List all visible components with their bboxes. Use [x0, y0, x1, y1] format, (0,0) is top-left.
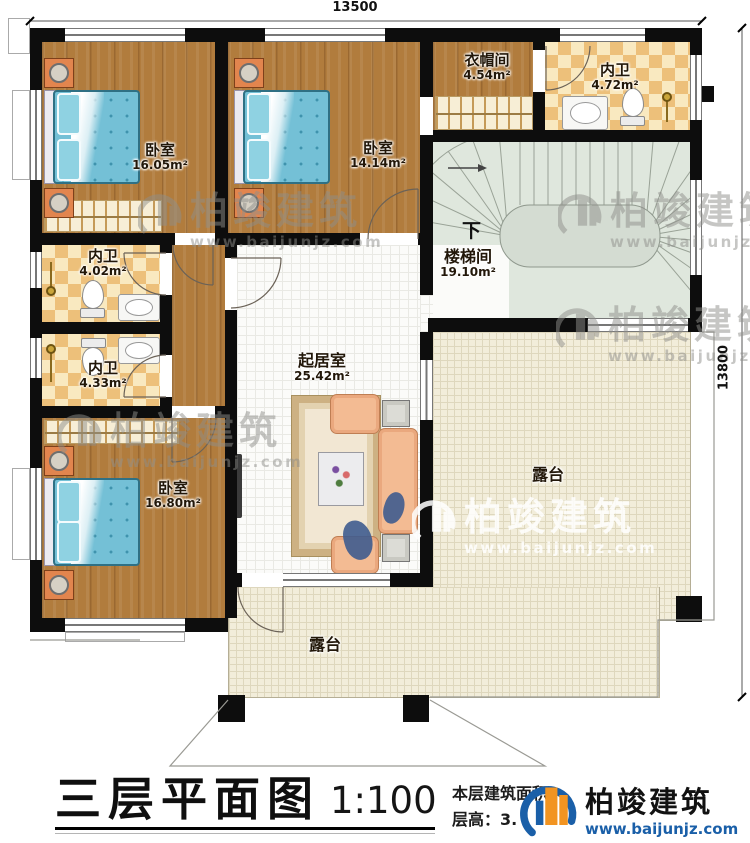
side-table — [382, 400, 410, 427]
bed-pillow — [57, 93, 81, 135]
page-title: 三层平面图 — [55, 776, 320, 822]
toilet-icon — [80, 280, 106, 320]
wall-segment — [420, 420, 433, 587]
drawing-scale: 1:100 — [330, 782, 437, 819]
toilet-icon — [620, 88, 646, 128]
wall-segment — [433, 130, 545, 142]
wall-segment — [160, 295, 172, 355]
stair-direction-label: 下 — [462, 216, 481, 243]
window — [283, 573, 390, 587]
nightstand — [44, 188, 74, 218]
window — [30, 468, 42, 560]
brand-logo-icon — [518, 780, 580, 840]
wall-segment — [690, 42, 702, 55]
bed-pillow — [57, 481, 81, 523]
wall-segment — [690, 120, 702, 180]
window-sill — [12, 468, 30, 560]
wall-segment — [160, 245, 172, 253]
floor-drain-icon — [662, 96, 672, 122]
window — [30, 338, 42, 378]
wall-segment — [42, 322, 160, 334]
dimension-right: 13800 — [717, 318, 732, 418]
wall-segment — [30, 233, 175, 245]
nightstand — [234, 188, 264, 218]
wall-segment — [30, 378, 42, 468]
wall-segment — [30, 288, 42, 338]
room-label-bath-mid-lower: 内卫 4.33m² — [53, 360, 153, 391]
wall-segment — [688, 318, 702, 332]
wall-segment — [702, 86, 714, 102]
wall-segment — [30, 618, 65, 632]
window-sill — [8, 18, 30, 54]
window — [265, 28, 385, 42]
room-label-stairwell: 楼梯间 19.10m² — [418, 248, 518, 280]
wall-segment — [228, 233, 360, 245]
room-label-terrace-right: 露台 — [498, 466, 598, 484]
nightstand — [234, 58, 264, 88]
window — [690, 55, 702, 120]
wall-segment — [385, 28, 560, 42]
wall-segment — [390, 573, 433, 587]
room-label-bath-mid-upper: 内卫 4.02m² — [53, 248, 153, 279]
room-label-cloakroom: 衣帽间 4.54m² — [437, 52, 537, 83]
nightstand — [44, 58, 74, 88]
title-underline-2 — [55, 833, 435, 834]
wall-segment — [30, 42, 42, 90]
wall-segment — [420, 42, 433, 97]
floor-corridor — [172, 245, 225, 406]
terrace-pillar — [676, 596, 702, 622]
room-label-bedroom-top-left: 卧室 16.05m² — [110, 142, 210, 173]
wall-segment — [215, 42, 228, 233]
wall-segment — [420, 332, 433, 360]
terrace-pillar — [403, 695, 429, 722]
brand-company-name: 柏竣建筑 — [585, 788, 713, 817]
bed-pillow — [247, 139, 271, 181]
room-label-bedroom-top-mid: 卧室 14.14m² — [328, 140, 428, 171]
terrace-pillar — [218, 695, 245, 722]
window — [30, 90, 42, 180]
wall-segment — [215, 406, 225, 418]
wardrobe-bedroom-bottom-left — [44, 420, 179, 444]
wall-segment — [225, 233, 237, 258]
window — [65, 618, 185, 632]
sink-icon — [118, 294, 160, 321]
nightstand — [44, 446, 74, 476]
wall-segment — [533, 42, 545, 50]
room-label-living-room: 起居室 25.42m² — [272, 352, 372, 384]
window — [420, 360, 433, 420]
brand-website: www.baijunjz.com — [585, 822, 738, 837]
room-label-bath-top-right: 内卫 4.72m² — [565, 62, 665, 93]
nightstand — [44, 570, 74, 600]
window — [690, 180, 702, 275]
bed-pillow — [57, 521, 81, 563]
wall-segment — [228, 573, 242, 587]
hanger-rail-cloakroom — [435, 96, 533, 130]
bed-top-mid — [234, 90, 330, 184]
bed-pillow — [57, 139, 81, 181]
wall-segment — [545, 130, 702, 142]
coffee-table — [318, 452, 364, 506]
window-sill — [65, 632, 185, 642]
wall-segment — [428, 318, 588, 332]
room-label-bedroom-bottom-left: 卧室 16.80m² — [123, 480, 223, 511]
window — [30, 252, 42, 288]
room-label-terrace-bottom: 露台 — [275, 636, 375, 654]
bed-pillow — [247, 93, 271, 135]
wall-segment — [42, 406, 170, 418]
wall-segment — [30, 28, 65, 42]
floor-height-label: 层高：3. — [452, 812, 517, 828]
wall-segment — [645, 28, 702, 42]
title-underline — [55, 827, 435, 830]
floor-plan-canvas: 柏竣建筑 www.baijunjz.com 柏竣建筑 www.baijunjz.… — [0, 0, 750, 843]
side-table — [382, 534, 410, 562]
wall-segment — [185, 28, 265, 42]
window — [65, 28, 185, 42]
sink-icon — [562, 96, 608, 130]
window — [560, 28, 645, 42]
armchair — [330, 394, 380, 434]
dimension-top: 13500 — [305, 0, 405, 15]
window-sill — [12, 90, 30, 180]
window — [588, 318, 688, 332]
wall-segment — [185, 618, 228, 632]
wall-segment — [225, 310, 237, 618]
